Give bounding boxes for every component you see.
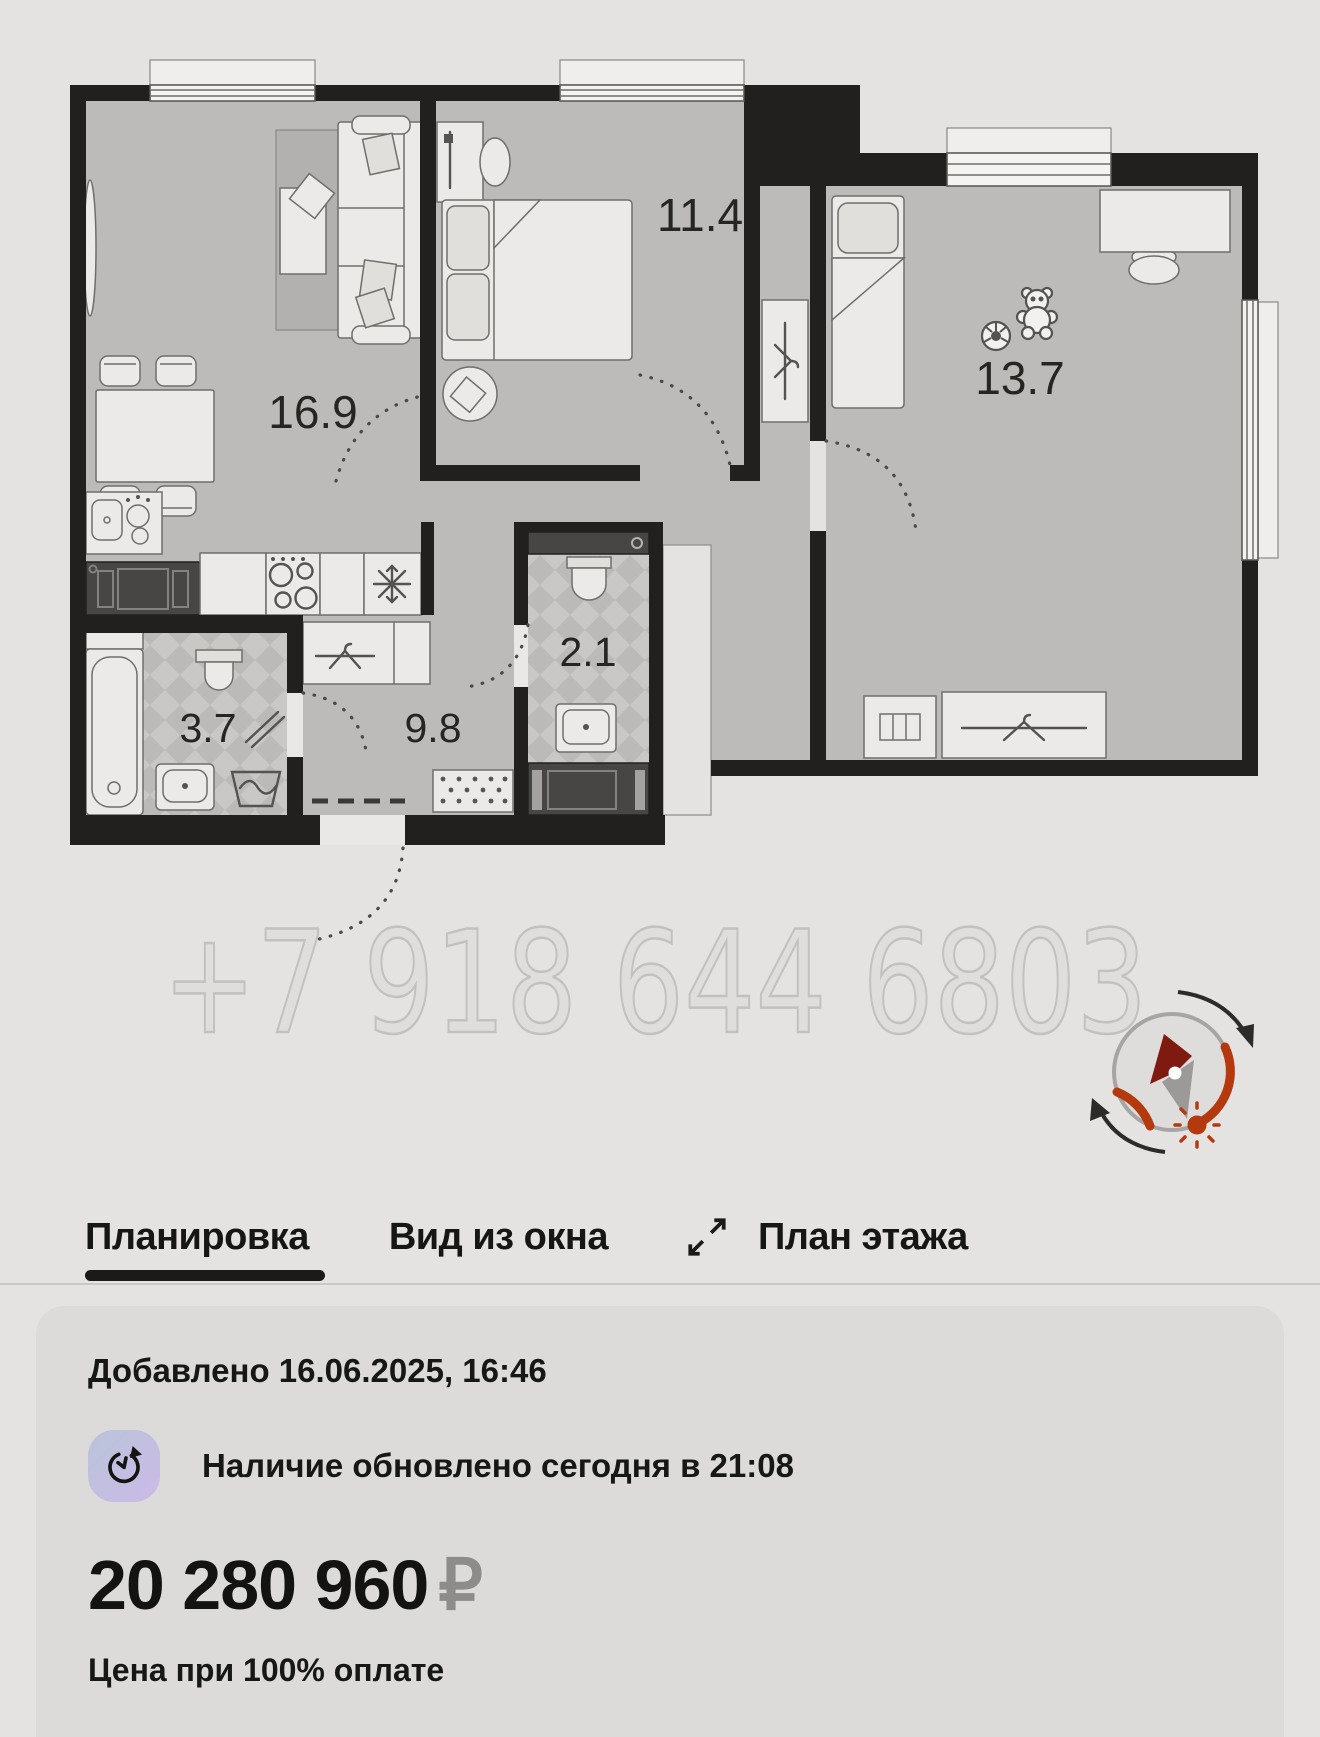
doormat: [433, 770, 513, 812]
listing-screen: 16.9 11.4 13.7 3.7 9.8 2.1 +7 918 644 68…: [0, 0, 1320, 1737]
bath-opening: [287, 693, 303, 757]
room-label-hall: 9.8: [405, 705, 462, 751]
rotate-ccw-arrow: [1090, 1098, 1110, 1121]
room-label-bath: 3.7: [180, 705, 237, 751]
price-row: 20 280 960₽: [88, 1544, 1232, 1626]
sofa-group: [276, 116, 422, 344]
expand-icon: [684, 1214, 730, 1260]
shaft-void: [663, 545, 711, 815]
room-label-bedroom: 11.4: [657, 189, 743, 241]
tab-window-view[interactable]: Вид из окна: [389, 1216, 608, 1259]
listing-info-card: Добавлено 16.06.2025, 16:46 Наличие обно…: [36, 1306, 1284, 1737]
hall-wardrobe: [303, 622, 430, 684]
clock-refresh-icon: [88, 1430, 160, 1502]
corridor-wardrobe: [762, 300, 808, 422]
rotate-cw-arrow: [1236, 1024, 1254, 1048]
availability-row: Наличие обновлено сегодня в 21:08: [88, 1430, 1232, 1502]
floor-corridor-lower: [711, 545, 810, 776]
added-date: Добавлено 16.06.2025, 16:46: [88, 1352, 1232, 1390]
watermark-phone: +7 918 644 6803: [163, 901, 1148, 1066]
room-label-wc: 2.1: [560, 629, 617, 675]
price-note: Цена при 100% оплате: [88, 1652, 1232, 1689]
entry-opening: [320, 815, 405, 845]
tab-floor-plan: План этажа: [758, 1216, 968, 1259]
tabs-divider: [0, 1283, 1320, 1285]
floor-plan-drawing: 16.9 11.4 13.7 3.7 9.8 2.1 +7 918 644 68…: [0, 0, 1320, 1160]
availability-text: Наличие обновлено сегодня в 21:08: [202, 1447, 794, 1485]
room-label-kids: 13.7: [975, 352, 1065, 404]
room-label-living: 16.9: [268, 386, 358, 438]
tab-floor-plan-group[interactable]: План этажа: [684, 1214, 968, 1260]
floor-plan-image[interactable]: 16.9 11.4 13.7 3.7 9.8 2.1 +7 918 644 68…: [0, 0, 1320, 1160]
snowflake-icon: [374, 566, 410, 602]
media-tabs: Планировка Вид из окна План этажа: [85, 1206, 968, 1268]
sun-icon: [1175, 1103, 1219, 1147]
price-value: 20 280 960: [88, 1546, 428, 1624]
active-tab-underline: [85, 1270, 325, 1281]
teddy-bear-icon: [1017, 288, 1057, 339]
currency-symbol: ₽: [438, 1546, 482, 1624]
soccer-ball-icon: [982, 322, 1010, 350]
tab-layout[interactable]: Планировка: [85, 1216, 309, 1259]
